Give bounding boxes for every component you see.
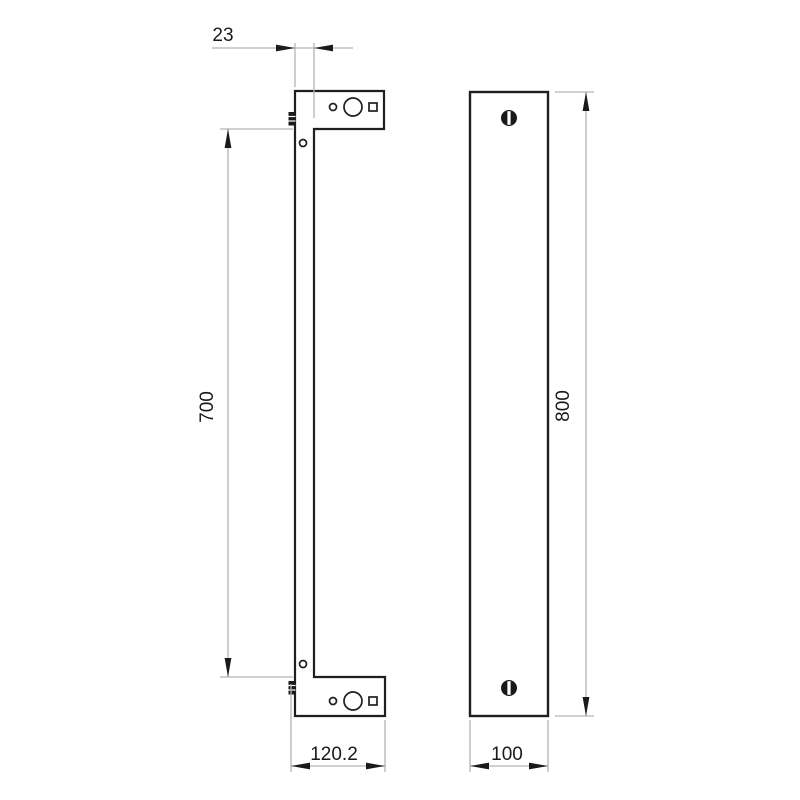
- dim-label-bracket-depth: 120.2: [310, 744, 358, 765]
- arrowhead: [583, 697, 590, 716]
- dim-hole-spacing: 700: [197, 129, 293, 677]
- arrowhead: [225, 658, 232, 677]
- dim-label-hole-spacing: 700: [197, 391, 218, 423]
- arrowhead: [225, 129, 232, 148]
- pull-handle-drawing: 23 700 800 120.2 100: [0, 0, 800, 800]
- arrowhead: [529, 763, 548, 770]
- dim-label-handle-thickness: 23: [212, 25, 233, 46]
- arrowhead: [470, 763, 489, 770]
- arrowhead: [583, 92, 590, 111]
- arrowhead: [291, 763, 310, 770]
- arrowhead: [366, 763, 385, 770]
- dim-label-face-width: 100: [491, 744, 523, 765]
- screw-head-top-icon: [501, 110, 517, 126]
- dim-label-overall-length: 800: [553, 390, 574, 422]
- arrowhead: [276, 45, 295, 52]
- dim-face-width: 100: [470, 720, 548, 772]
- set-screw-bottom-icon: [289, 681, 296, 695]
- dim-overall-length: 800: [553, 92, 594, 716]
- handle-profile-outline: [295, 91, 385, 716]
- technical-drawing-canvas: 23 700 800 120.2 100: [0, 0, 800, 800]
- front-view: [470, 92, 548, 716]
- side-view: [289, 91, 386, 716]
- set-screw-top-icon: [289, 112, 296, 126]
- screw-head-bottom-icon: [501, 680, 517, 696]
- arrowhead: [314, 45, 333, 52]
- handle-face-outline: [470, 92, 548, 716]
